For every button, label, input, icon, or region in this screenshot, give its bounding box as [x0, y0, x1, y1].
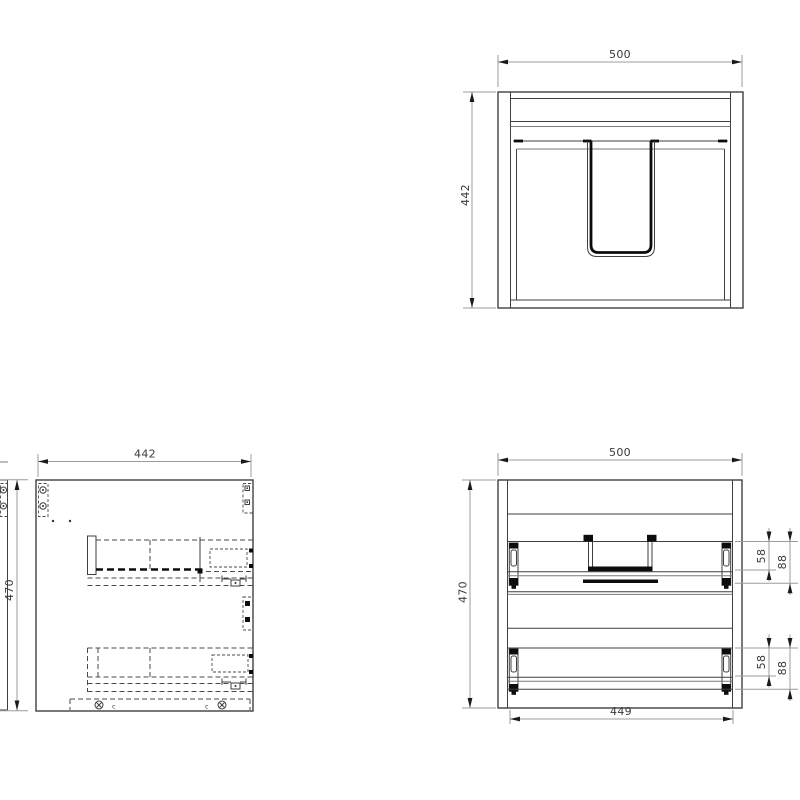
top-drawer-slide-left: [509, 543, 518, 589]
front-height-dimension: 470: [457, 480, 497, 708]
bottom-drawer-slide-dim-label: 58: [755, 655, 768, 670]
side-height-dimension: 470: [0, 480, 28, 711]
front-cabinet-body: [498, 480, 742, 708]
bottom-drawer-slide-right: [722, 649, 731, 695]
side-view: 470 442: [0, 448, 253, 712]
top-drawer-slide-dim-label: 58: [755, 549, 768, 564]
rear-view: 500 442: [459, 48, 743, 308]
side-panel-body: c c: [36, 480, 253, 711]
marker-letter-right: c: [205, 703, 209, 711]
front-view: 500 470: [457, 446, 799, 724]
side-width-dimension: 442: [38, 448, 251, 478]
top-drawer-dimensions: 58 88: [735, 528, 798, 595]
drawing-canvas: 500 442: [0, 0, 800, 800]
front-width-label: 500: [609, 446, 631, 459]
front-width-dimension: 500: [498, 446, 742, 476]
rear-width-dimension: 500: [498, 48, 742, 87]
front-height-label: 470: [457, 581, 470, 603]
bottom-drawer-dimensions: 58 88: [735, 635, 798, 702]
wheel-left: [95, 701, 103, 709]
top-drawer-box-dim-label: 88: [776, 555, 789, 570]
front-bottom-width-label: 449: [610, 705, 632, 718]
recess-shadow-bar: [583, 580, 658, 584]
marker-letter-left: c: [112, 703, 116, 711]
side-width-label: 442: [134, 448, 156, 461]
rear-cabinet-body: [498, 92, 743, 308]
bottom-drawer-box-dim-label: 88: [776, 661, 789, 676]
technical-drawing: 500 442: [0, 0, 800, 800]
rear-height-label: 442: [459, 184, 472, 206]
wheel-right: [218, 701, 226, 709]
rear-height-dimension: 442: [459, 92, 496, 308]
bottom-drawer-slide-left: [509, 649, 518, 695]
side-height-label: 470: [3, 579, 16, 601]
rear-width-label: 500: [609, 48, 631, 61]
top-drawer-slide-right: [722, 543, 731, 589]
